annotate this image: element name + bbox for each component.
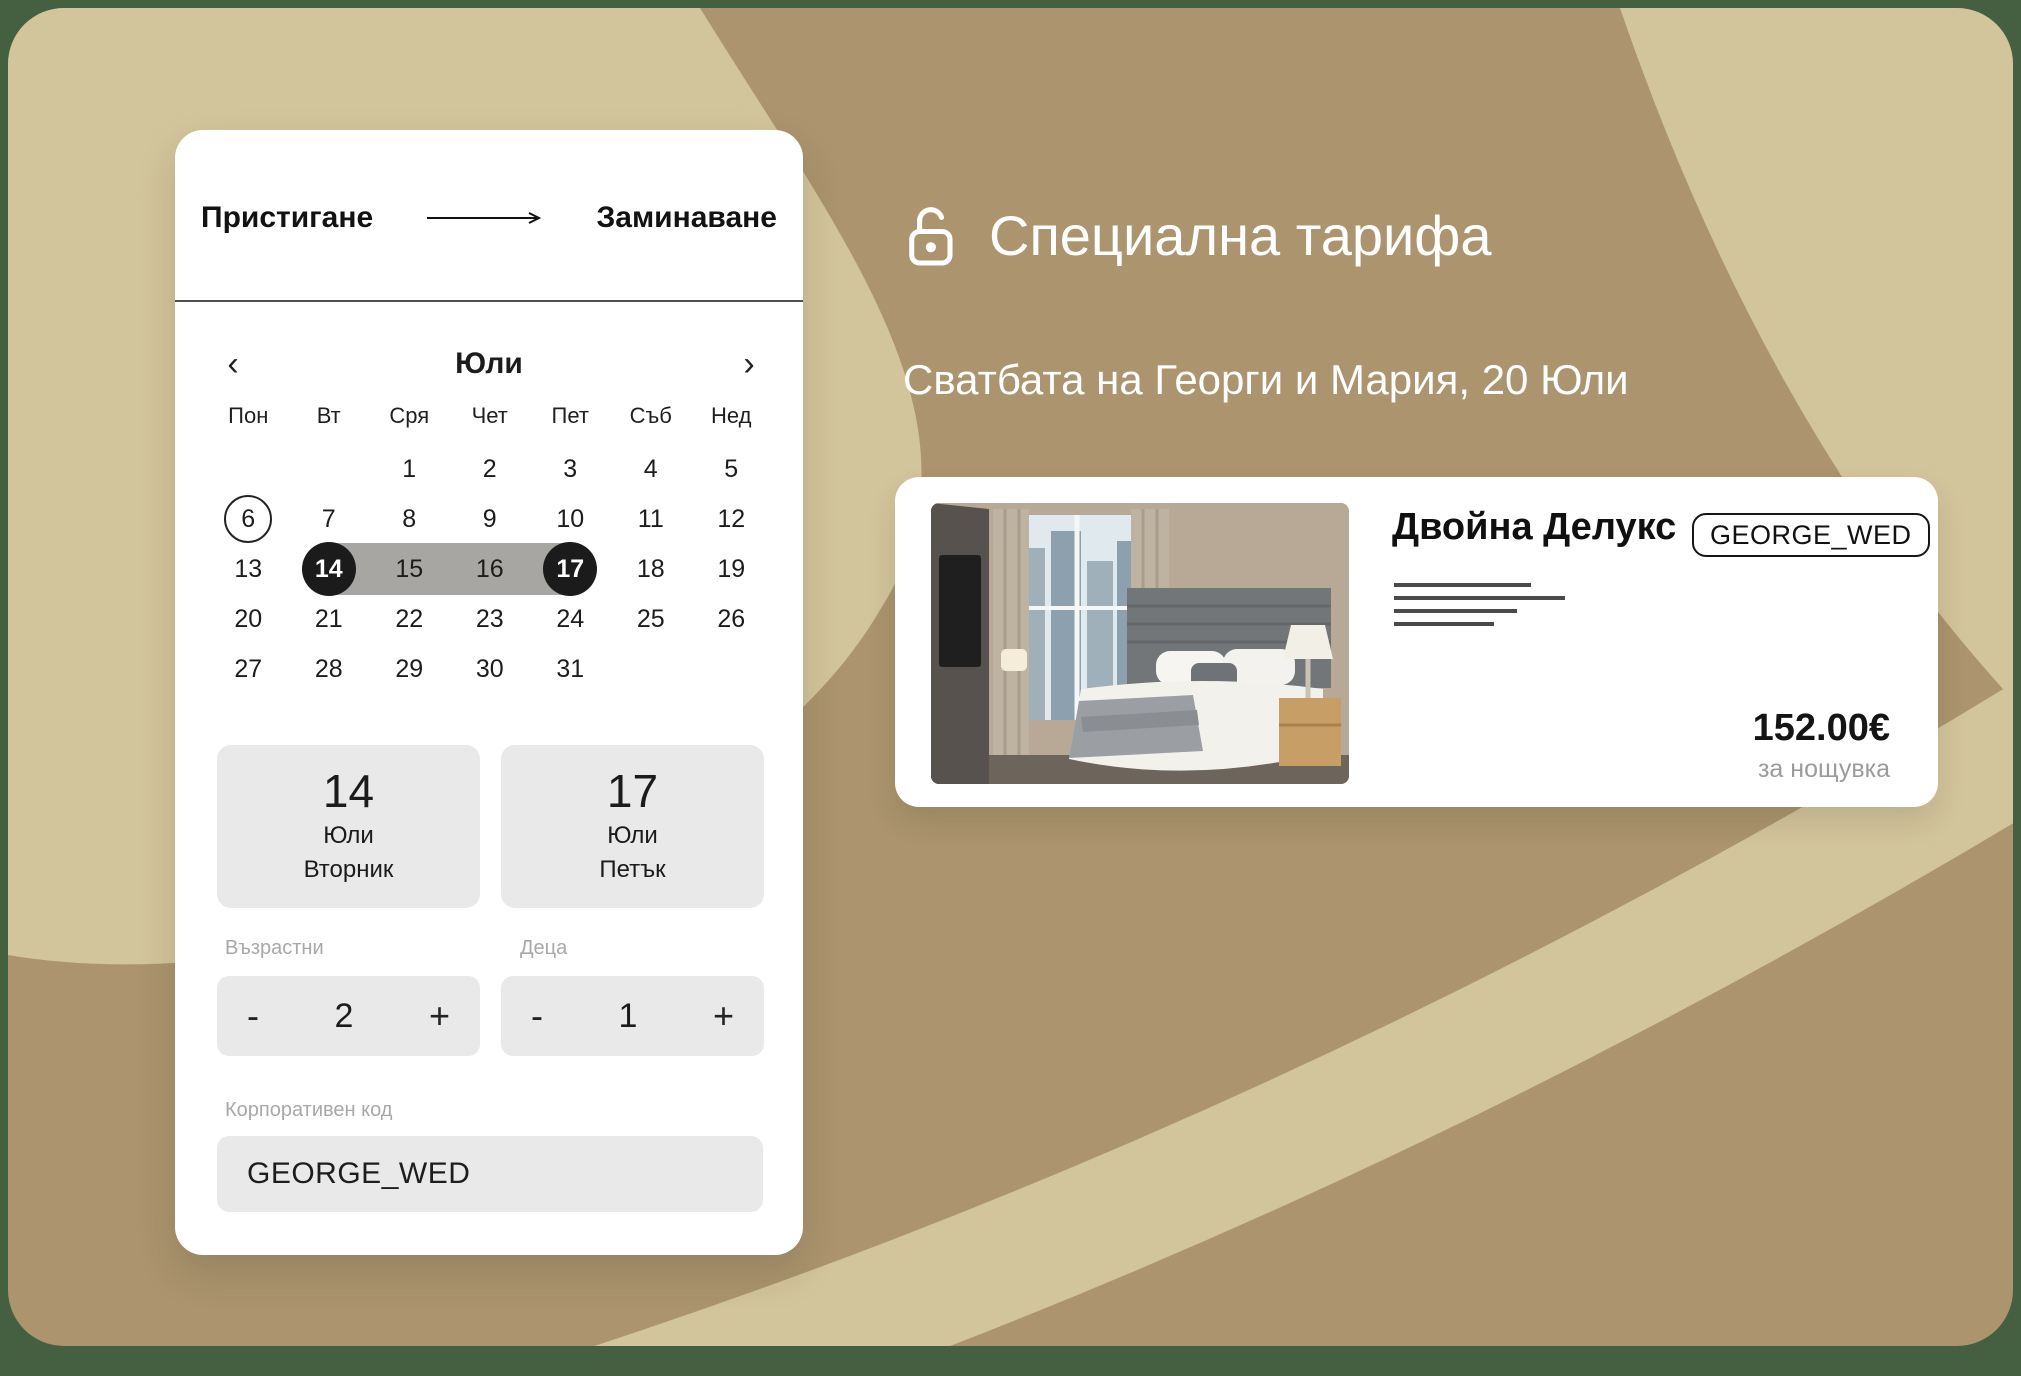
calendar-day[interactable]: 24 xyxy=(530,595,611,645)
calendar-day[interactable]: 7 xyxy=(289,494,370,544)
children-value: 1 xyxy=(619,997,638,1036)
weekday-label: Пон xyxy=(208,388,289,444)
day-number: 12 xyxy=(717,505,745,534)
check-out-summary: 17 Юли Петък xyxy=(501,745,764,908)
adults-minus-button[interactable]: - xyxy=(247,996,259,1036)
calendar-day[interactable]: 5 xyxy=(691,444,772,494)
calendar-day-empty xyxy=(691,645,772,695)
arrow-right-icon xyxy=(425,211,545,225)
calendar-day[interactable]: 25 xyxy=(611,595,692,645)
day-number: 27 xyxy=(234,655,262,684)
calendar-day[interactable]: 4 xyxy=(611,444,692,494)
calendar-nav: ‹ Юли › xyxy=(175,338,803,390)
day-number: 22 xyxy=(395,605,423,634)
adults-plus-button[interactable]: + xyxy=(429,996,450,1036)
calendar-day[interactable]: 17 xyxy=(530,544,611,594)
calendar-day[interactable]: 18 xyxy=(611,544,692,594)
weekday-label: Съб xyxy=(611,388,692,444)
calendar-day[interactable]: 23 xyxy=(450,595,531,645)
day-number: 26 xyxy=(717,605,745,634)
placeholder-line xyxy=(1394,596,1565,600)
description-placeholder-lines xyxy=(1394,583,1565,635)
promo-subtitle: Сватбата на Георги и Мария, 20 Юли xyxy=(903,352,1629,408)
booking-card: Пристигане Заминаване ‹ Юли › ПонВтСряЧе… xyxy=(175,130,803,1255)
calendar-day[interactable]: 26 xyxy=(691,595,772,645)
room-card: Двойна Делукс GEORGE_WED 152.00€ за нощу… xyxy=(895,477,1938,807)
page-root: Пристигане Заминаване ‹ Юли › ПонВтСряЧе… xyxy=(0,0,2021,1376)
room-price: 152.00€ xyxy=(1753,705,1890,751)
weekday-label: Нед xyxy=(691,388,772,444)
calendar-day[interactable]: 8 xyxy=(369,494,450,544)
day-number: 11 xyxy=(638,505,664,534)
calendar-day-empty xyxy=(208,444,289,494)
calendar-day[interactable]: 15 xyxy=(369,544,450,594)
day-number: 25 xyxy=(637,605,665,634)
day-number: 6 xyxy=(241,505,255,534)
check-out-month: Юли xyxy=(607,819,658,853)
day-number: 15 xyxy=(395,555,423,584)
check-in-summary: 14 Юли Вторник xyxy=(217,745,480,908)
calendar-day[interactable]: 27 xyxy=(208,645,289,695)
calendar-day[interactable]: 16 xyxy=(450,544,531,594)
calendar-day[interactable]: 2 xyxy=(450,444,531,494)
calendar-day[interactable]: 29 xyxy=(369,645,450,695)
day-number: 16 xyxy=(476,555,504,584)
placeholder-line xyxy=(1394,583,1531,587)
day-number: 29 xyxy=(395,655,423,684)
corporate-code-value: GEORGE_WED xyxy=(247,1157,470,1191)
adults-stepper: - 2 + xyxy=(217,976,480,1056)
promo-title: Специална тарифа xyxy=(989,194,1492,278)
calendar-day[interactable]: 3 xyxy=(530,444,611,494)
day-number: 7 xyxy=(322,505,336,534)
adults-label: Възрастни xyxy=(225,936,324,960)
day-number: 23 xyxy=(476,605,504,634)
price-unit: за нощувка xyxy=(1753,753,1890,785)
calendar-day[interactable]: 28 xyxy=(289,645,370,695)
day-number: 24 xyxy=(556,605,584,634)
room-photo xyxy=(931,503,1349,784)
corporate-code-label: Корпоративен код xyxy=(225,1098,392,1122)
calendar-day[interactable]: 14 xyxy=(289,544,370,594)
promo-title-row: Специална тарифа xyxy=(905,194,1492,278)
day-number: 21 xyxy=(315,605,343,634)
day-number: 10 xyxy=(556,505,584,534)
weekday-label: Чет xyxy=(450,388,531,444)
arrival-label: Пристигане xyxy=(201,201,373,235)
unlock-icon xyxy=(905,204,959,268)
day-number: 17 xyxy=(556,555,584,584)
calendar-day-empty xyxy=(289,444,370,494)
placeholder-line xyxy=(1394,609,1517,613)
adults-value: 2 xyxy=(335,997,354,1036)
price-block: 152.00€ за нощувка xyxy=(1753,705,1890,785)
check-in-day: 14 xyxy=(323,763,374,819)
date-range-header: Пристигане Заминаване xyxy=(201,185,777,250)
calendar-month-label: Юли xyxy=(175,338,803,390)
day-number: 1 xyxy=(402,455,416,484)
calendar-day[interactable]: 12 xyxy=(691,494,772,544)
calendar-day[interactable]: 10 xyxy=(530,494,611,544)
calendar-day[interactable]: 11 xyxy=(611,494,692,544)
weekday-label: Вт xyxy=(289,388,370,444)
calendar-day[interactable]: 9 xyxy=(450,494,531,544)
day-number: 28 xyxy=(315,655,343,684)
day-number: 8 xyxy=(402,505,416,534)
calendar-day[interactable]: 22 xyxy=(369,595,450,645)
day-number: 3 xyxy=(563,455,577,484)
day-number: 30 xyxy=(476,655,504,684)
children-stepper: - 1 + xyxy=(501,976,764,1056)
day-number: 9 xyxy=(483,505,497,534)
departure-label: Заминаване xyxy=(597,201,777,235)
header-divider xyxy=(175,300,803,302)
corporate-code-input[interactable]: GEORGE_WED xyxy=(217,1136,763,1212)
room-name: Двойна Делукс xyxy=(1392,499,1676,555)
day-number: 18 xyxy=(637,555,665,584)
weekday-label: Пет xyxy=(530,388,611,444)
room-code-badge: GEORGE_WED xyxy=(1692,513,1930,557)
calendar-next-button[interactable]: › xyxy=(729,342,769,386)
day-number: 5 xyxy=(724,455,738,484)
day-number: 13 xyxy=(234,555,262,584)
day-number: 19 xyxy=(717,555,745,584)
calendar-grid: ПонВтСряЧетПетСъбНед12345678910111213141… xyxy=(208,388,772,695)
calendar-day[interactable]: 19 xyxy=(691,544,772,594)
calendar-day[interactable]: 21 xyxy=(289,595,370,645)
calendar-day-empty xyxy=(611,645,692,695)
check-in-weekday: Вторник xyxy=(304,853,394,887)
calendar-day[interactable]: 6 xyxy=(208,494,289,544)
day-number: 2 xyxy=(483,455,497,484)
check-out-day: 17 xyxy=(607,763,658,819)
calendar-day[interactable]: 31 xyxy=(530,645,611,695)
children-minus-button[interactable]: - xyxy=(531,996,543,1036)
calendar-day[interactable]: 30 xyxy=(450,645,531,695)
day-number: 20 xyxy=(234,605,262,634)
check-in-month: Юли xyxy=(323,819,374,853)
placeholder-line xyxy=(1394,622,1494,626)
day-number: 4 xyxy=(644,455,658,484)
weekday-label: Сря xyxy=(369,388,450,444)
check-out-weekday: Петък xyxy=(599,853,665,887)
day-number: 14 xyxy=(315,555,343,584)
children-plus-button[interactable]: + xyxy=(713,996,734,1036)
children-label: Деца xyxy=(520,936,567,960)
calendar-day[interactable]: 13 xyxy=(208,544,289,594)
day-number: 31 xyxy=(556,655,584,684)
calendar-day[interactable]: 20 xyxy=(208,595,289,645)
calendar-day[interactable]: 1 xyxy=(369,444,450,494)
